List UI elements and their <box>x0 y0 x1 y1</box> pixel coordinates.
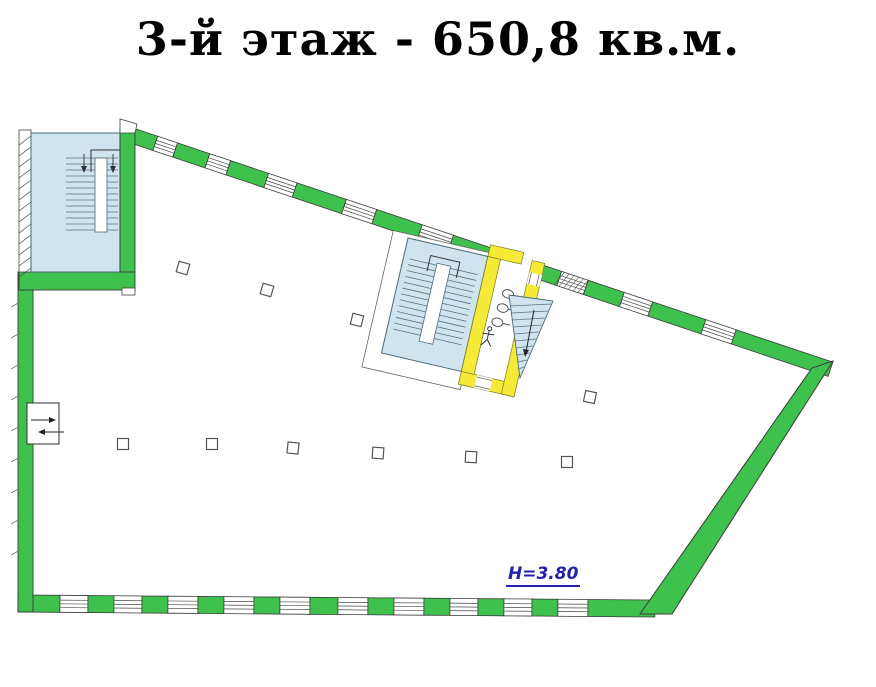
wall-segment-green <box>532 599 558 616</box>
wall-segment-green <box>142 596 168 613</box>
stairwell-side-wall <box>120 128 135 272</box>
left-wall-top-band <box>19 272 135 290</box>
ceiling-height-label: H=3.80 <box>506 564 580 587</box>
wall-segment-green <box>88 596 114 613</box>
stairwell-top-left <box>19 119 137 277</box>
wall-segment-green <box>424 598 450 615</box>
wall-segment-green <box>478 599 504 616</box>
stair-divider <box>95 158 107 232</box>
column-marker <box>350 313 363 326</box>
wall-segment-green <box>648 302 706 334</box>
column-marker <box>207 439 218 450</box>
wall-segment-green <box>226 161 269 188</box>
column-marker <box>287 442 299 454</box>
wall-segment-green <box>292 183 346 214</box>
floor-plan-page: 3-й этаж - 650,8 кв.м. H=3.80 <box>0 0 876 687</box>
column-marker <box>260 283 274 297</box>
wall-segment-green <box>173 143 210 168</box>
wall-segment-green <box>254 597 280 614</box>
wall-segment-green <box>368 598 394 615</box>
column-marker <box>583 390 596 403</box>
elevator-outline <box>27 403 59 444</box>
floor-plan <box>0 0 876 687</box>
column-marker <box>562 457 573 468</box>
column-marker <box>372 447 384 459</box>
corner-cap <box>120 119 137 133</box>
wall-segment-green <box>310 597 338 614</box>
right-wall <box>640 361 833 614</box>
small-wall-box <box>122 288 135 295</box>
column-marker <box>176 261 190 275</box>
bottom-wall <box>18 595 655 617</box>
column-marker <box>118 439 129 450</box>
wall-segment-green <box>198 596 224 613</box>
column-marker <box>465 451 477 463</box>
elevator-box <box>27 403 64 444</box>
wall-segment-green <box>583 280 624 306</box>
